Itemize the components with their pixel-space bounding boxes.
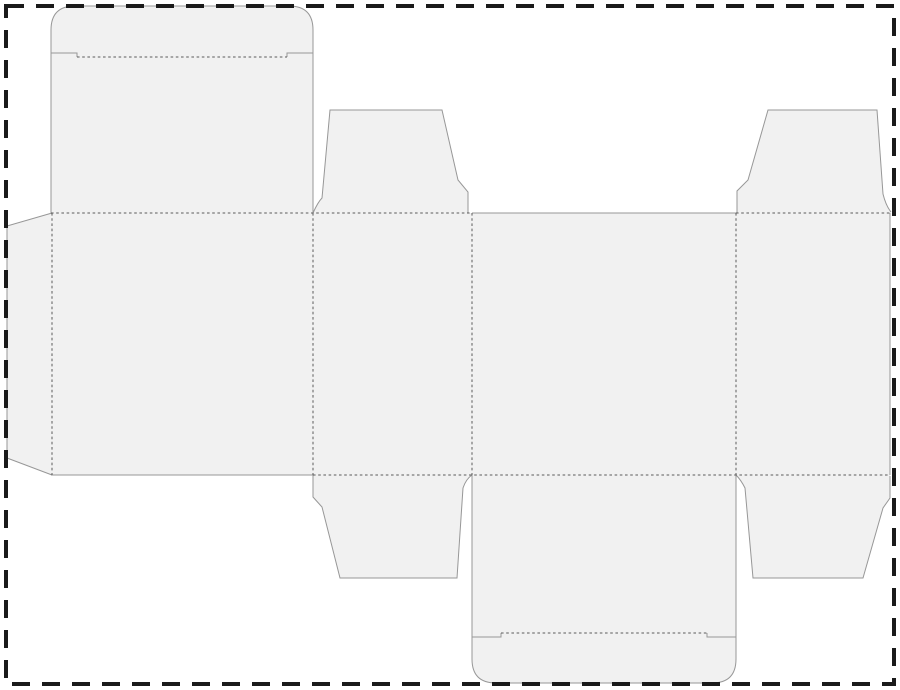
- bottom-lid-and-tuck: [472, 475, 736, 683]
- top-dust-flap-left: [313, 110, 468, 213]
- side-panel-right: [736, 213, 890, 475]
- back-panel-top-lid-and-tuck: [51, 6, 313, 475]
- dieline-svg: [0, 0, 900, 690]
- dieline-pieces-layer: [7, 6, 891, 683]
- glue-flap: [7, 213, 52, 475]
- bottom-dust-flap-left: [313, 475, 472, 578]
- front-panel: [472, 213, 736, 475]
- top-dust-flap-right: [737, 110, 891, 213]
- side-panel-left: [313, 213, 472, 475]
- dieline-canvas: [0, 0, 900, 690]
